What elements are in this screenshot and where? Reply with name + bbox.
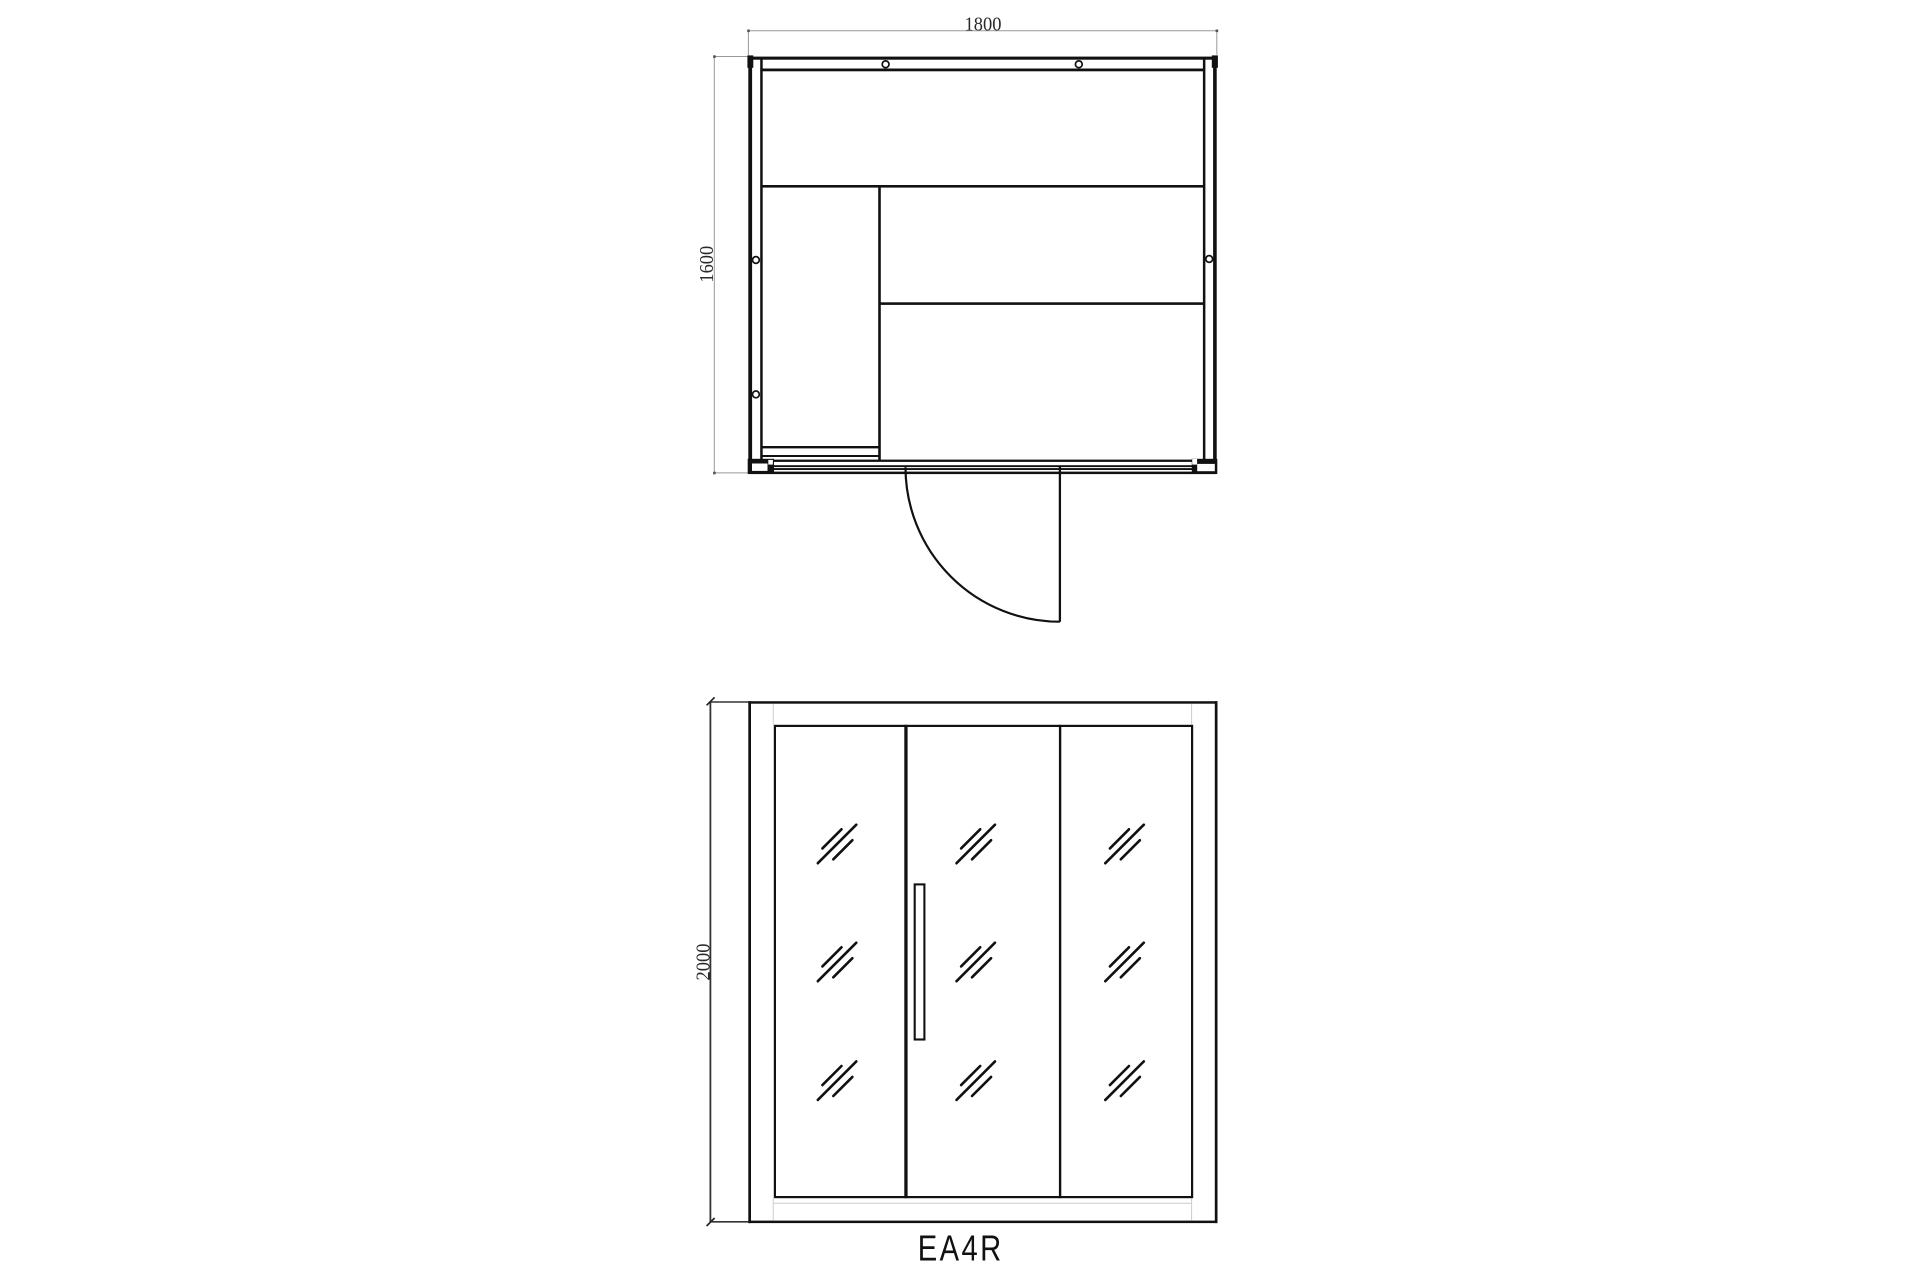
svg-text:EA4R: EA4R <box>918 1228 1004 1269</box>
svg-text:1800: 1800 <box>965 14 1002 36</box>
svg-text:1600: 1600 <box>696 246 718 283</box>
svg-text:2000: 2000 <box>693 944 715 981</box>
